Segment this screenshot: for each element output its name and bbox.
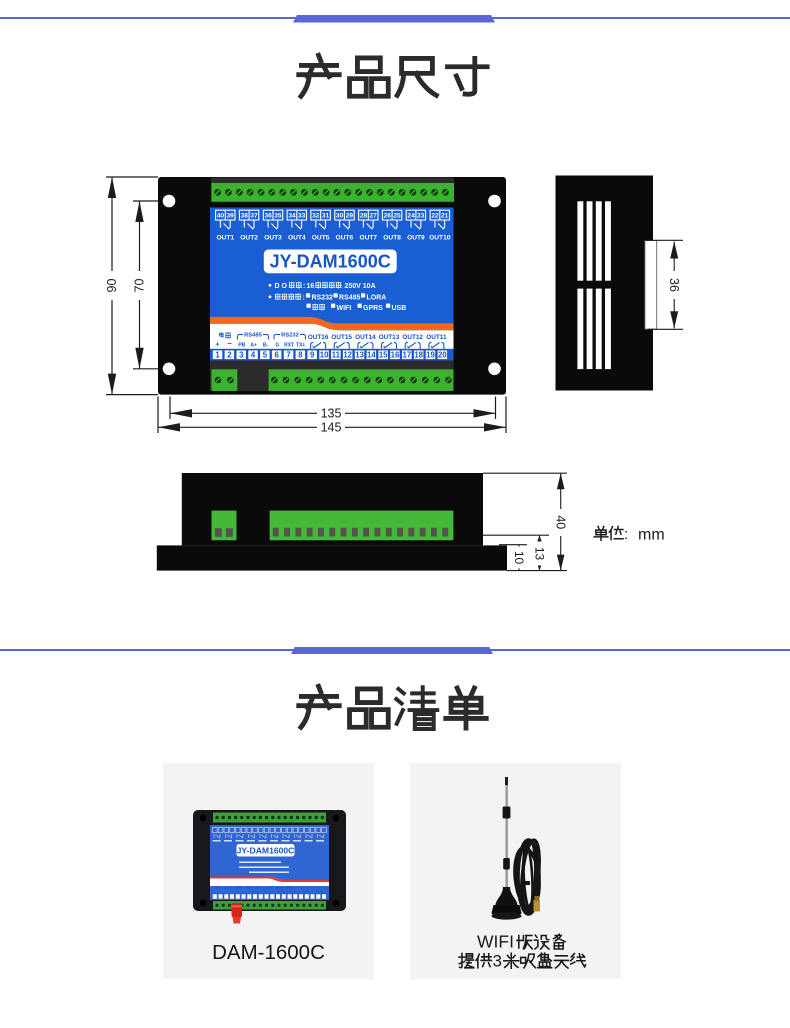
svg-text:JY-DAM1600C: JY-DAM1600C: [237, 846, 295, 856]
svg-text:3: 3: [493, 952, 502, 971]
svg-text:WIFI: WIFI: [477, 932, 514, 952]
